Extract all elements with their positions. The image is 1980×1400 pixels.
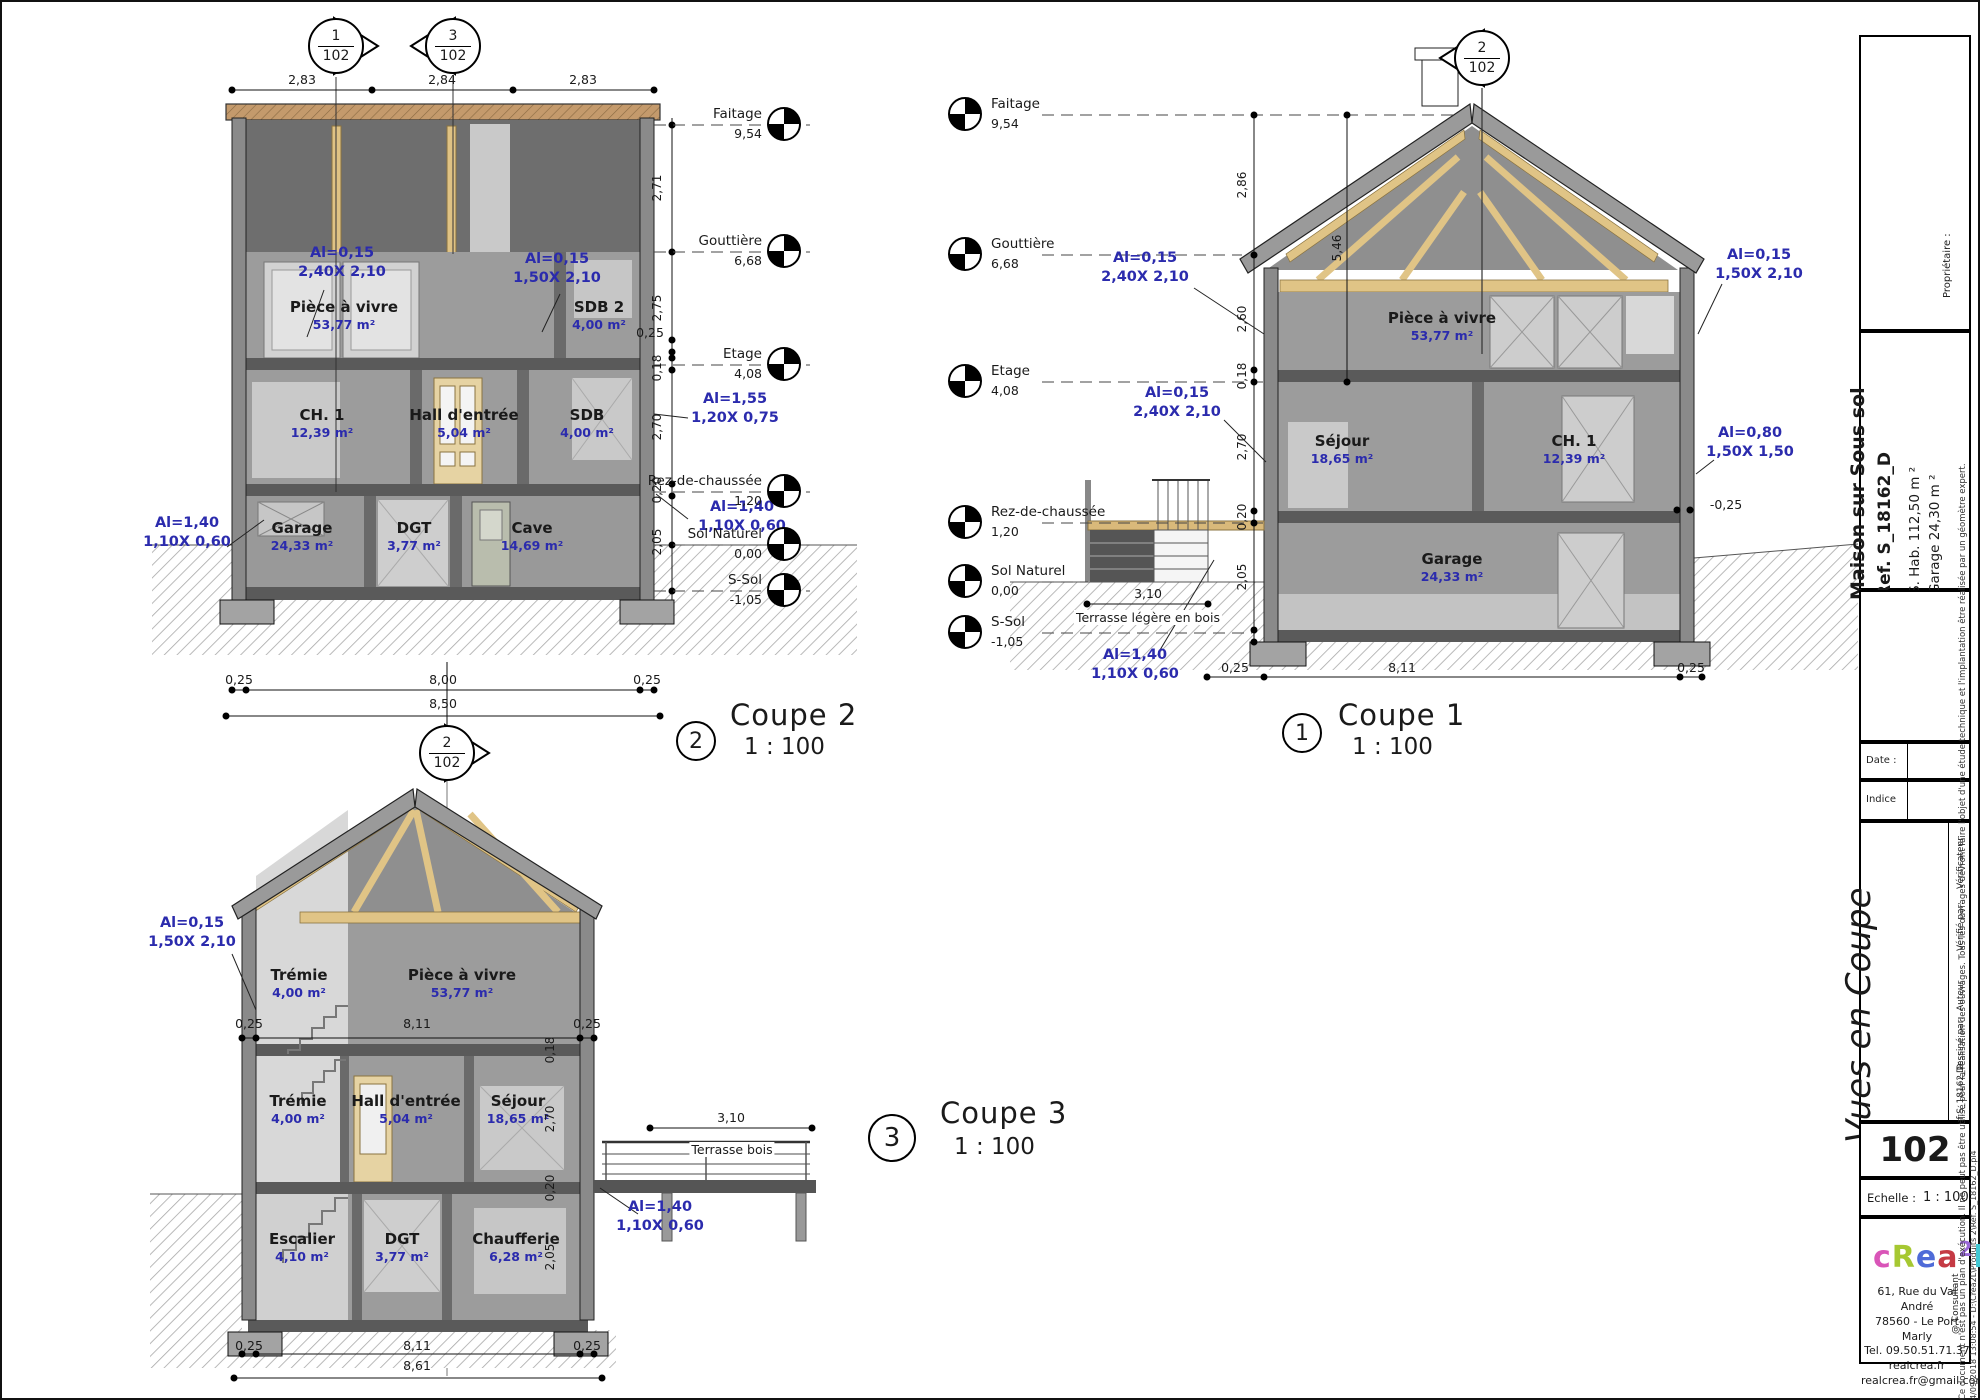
dim-top-3: 2,83 [569, 72, 597, 87]
annotation-window: Al=0,15 1,50X 2,10 [1715, 246, 1803, 284]
date-label: Date : [1866, 755, 1896, 766]
dim-vertical: 0,20 [543, 1175, 557, 1202]
owner-box: Propriétaire : [1859, 35, 1971, 331]
disclaimer-text: Ce document n'est pas un plan d'exécutio… [1958, 463, 1968, 1400]
plan-sheet: 1102 3102 2102 2,83 2,84 2,83 Pièce à vi… [0, 0, 1980, 1400]
scale-box: Echelle : 1 : 100 [1859, 1178, 1971, 1217]
coupe1-title: Coupe 1 [1338, 698, 1465, 732]
dim-vertical: 2,70 [543, 1106, 557, 1133]
room-sdb2: SDB 24,00 m² [572, 298, 626, 332]
dim-vertical: 2,75 [650, 295, 664, 322]
room-dgt: DGT3,77 m² [387, 519, 441, 553]
sheet-title: Vues en Coupe [1839, 887, 1879, 1143]
project-name: Maison sur Sous sol [1847, 387, 1869, 600]
annotation-window: Al=0,15 1,50X 2,10 [148, 914, 236, 952]
section-marker-2-top: 2102 [1454, 30, 1510, 86]
level-symbol-icon [767, 347, 801, 381]
dim-inner: 0,25 [573, 1016, 601, 1031]
level-etage: Etage4,08 [630, 344, 805, 384]
level-symbol-icon [767, 573, 801, 607]
project-surface-garage: Garage 24,30 m ² [1927, 474, 1943, 594]
annotation-window: Al=0,15 2,40X 2,10 [1133, 384, 1221, 422]
dim-top-1: 2,83 [288, 72, 316, 87]
level-faitage: Faitage9,54 [948, 94, 1151, 134]
coupe1-bubble: 1 [1282, 713, 1322, 753]
level-rdc: Rez-de-chaussée1,20 [630, 471, 805, 511]
dim-inner: 0,25 [235, 1016, 263, 1031]
dim-bottom: 8,11 [1388, 660, 1416, 675]
level-symbol-icon [767, 474, 801, 508]
coupe2-scale: 1 : 100 [744, 734, 825, 760]
section-marker-1: 1102 [308, 18, 364, 74]
dim-vertical: 2,60 [1235, 306, 1249, 333]
room-ch1: CH. 112,39 m² [291, 406, 353, 440]
room-sejour: Séjour18,65 m² [1311, 432, 1373, 466]
level-sol-naturel: Sol Naturel0,00 [630, 524, 805, 564]
dim-vertical: 2,70 [650, 414, 664, 441]
dim-vertical: 0,20 [1235, 504, 1249, 531]
project-surface-hab: S. Hab. 112,50 m ² [1907, 467, 1923, 594]
section-marker-3: 3102 [425, 18, 481, 74]
coupe3-title: Coupe 3 [940, 1096, 1067, 1130]
annotation-window: Al=0,15 1,50X 2,10 [513, 250, 601, 288]
room-sejour: Séjour18,65 m² [487, 1092, 549, 1126]
coupe3-scale: 1 : 100 [954, 1134, 1035, 1160]
divider [1948, 823, 1949, 1120]
dim-vertical: 2,05 [1235, 564, 1249, 591]
dim-vertical: 0,18 [543, 1037, 557, 1064]
dim-ledge: -0,25 [1710, 497, 1742, 512]
room-dgt: DGT3,77 m² [375, 1230, 429, 1264]
dim-bottom: 8,00 [429, 672, 457, 687]
sheet-number: 102 [1859, 1122, 1971, 1178]
annotation-window: Al=0,15 2,40X 2,10 [1101, 249, 1189, 287]
level-symbol-icon [767, 527, 801, 561]
dim-ledge: 0,25 [636, 325, 664, 340]
dim-vertical: 2,86 [1235, 172, 1249, 199]
level-gouttiere: Gouttière6,68 [630, 231, 805, 271]
coupe2-bubble: 2 [676, 721, 716, 761]
divider [1907, 782, 1908, 819]
revision-box [1859, 590, 1971, 742]
dim-bottom: 0,25 [573, 1338, 601, 1353]
level-faitage: Faitage9,54 [630, 104, 805, 144]
dim-inner: 8,11 [403, 1016, 431, 1031]
indice-label: Indice [1866, 794, 1896, 805]
level-symbol-icon [767, 107, 801, 141]
coupe3-section [150, 789, 816, 1382]
level-symbol-icon [948, 505, 982, 539]
dim-vertical: 0,18 [1235, 363, 1249, 390]
room-escalier: Escalier4,10 m² [269, 1230, 335, 1264]
level-symbol-icon [767, 234, 801, 268]
room-tremie-haut: Trémie4,00 m² [270, 966, 327, 1000]
dim-bottom: 0,25 [235, 1338, 263, 1353]
level-sol-naturel: Sol Naturel0,00 [948, 561, 1151, 601]
annotation-window: Al=0,15 2,40X 2,10 [298, 244, 386, 282]
dim-bottom: 0,25 [1677, 660, 1705, 675]
dim-terrace: 3,10 [717, 1110, 745, 1125]
room-hall: Hall d'entrée5,04 m² [351, 1092, 460, 1126]
coupe3-bubble: 3 [868, 1114, 916, 1162]
level-symbol-icon [948, 615, 982, 649]
level-symbol-icon [948, 564, 982, 598]
dim-bottom: 0,25 [633, 672, 661, 687]
logo-box: cRea2l @ Consultant 61, Rue du Val André… [1859, 1217, 1971, 1364]
coupe1-scale: 1 : 100 [1352, 734, 1433, 760]
dim-top-2: 2,84 [428, 72, 456, 87]
owner-label: Propriétaire : [1942, 233, 1953, 298]
annotation-door: Al=1,40 1,10X 0,60 [1091, 646, 1179, 684]
room-piece-a-vivre: Pièce à vivre53,77 m² [408, 966, 516, 1000]
divider [1907, 744, 1908, 778]
dim-bottom-total: 8,50 [429, 696, 457, 711]
indice-row: Indice [1859, 780, 1971, 821]
project-box: Maison sur Sous sol Ref. S_18162_D S. Ha… [1859, 331, 1971, 590]
level-etage: Etage4,08 [948, 361, 1151, 401]
dim-bottom: 0,25 [1221, 660, 1249, 675]
dim-vertical: 5,46 [1330, 235, 1344, 262]
date-row: Date : [1859, 742, 1971, 780]
dim-bottom: 8,11 [403, 1338, 431, 1353]
room-piece-a-vivre: Pièce à vivre53,77 m² [1388, 309, 1496, 343]
dim-bottom-total: 8,61 [403, 1358, 431, 1373]
level-symbol-icon [948, 97, 982, 131]
annotation-window: Al=1,55 1,20X 0,75 [691, 390, 779, 428]
annotation-window: Al=0,80 1,50X 1,50 [1706, 424, 1794, 462]
room-garage: Garage24,33 m² [271, 519, 333, 553]
terrace-label: Terrasse bois [689, 1142, 774, 1157]
room-garage: Garage24,33 m² [1421, 550, 1483, 584]
dim-vertical: 2,05 [543, 1244, 557, 1271]
dim-vertical: 2,71 [650, 175, 664, 202]
drawing-canvas [2, 2, 1980, 1400]
level-symbol-icon [948, 237, 982, 271]
room-ch1: CH. 112,39 m² [1543, 432, 1605, 466]
dim-bottom: 0,25 [225, 672, 253, 687]
project-ref: Ref. S_18162_D [1875, 452, 1895, 598]
dim-terrace: 3,10 [1134, 586, 1162, 601]
sheet-title-box: Vues en Coupe Vérificateur Vérifié par: … [1859, 821, 1971, 1122]
company-address: 61, Rue du Val André 78560 - Le Port Mar… [1861, 1285, 1973, 1389]
room-sdb: SDB4,00 m² [560, 406, 614, 440]
terrace-label: Terrasse légère en bois [1074, 610, 1222, 625]
coupe2-title: Coupe 2 [730, 698, 857, 732]
room-tremie: Trémie4,00 m² [269, 1092, 326, 1126]
level-rdc: Rez-de-chaussée1,20 [948, 502, 1151, 542]
room-cave: Cave14,69 m² [501, 519, 563, 553]
room-hall: Hall d'entrée5,04 m² [409, 406, 518, 440]
dim-vertical: 2,70 [1235, 434, 1249, 461]
scale-label: Echelle : [1867, 1191, 1916, 1205]
file-path-text: 04/09/2018 13:08:54 - D:\Crea2L\Produits… [1969, 1150, 1978, 1400]
annotation-door: Al=1,40 1,10X 0,60 [616, 1198, 704, 1236]
level-symbol-icon [948, 364, 982, 398]
room-piece-a-vivre: Pièce à vivre53,77 m² [290, 298, 398, 332]
annotation-window: Al=1,40 1,10X 0,60 [143, 514, 231, 552]
level-ssol: S-Sol-1,05 [630, 570, 805, 610]
section-marker-2: 2102 [419, 725, 475, 781]
